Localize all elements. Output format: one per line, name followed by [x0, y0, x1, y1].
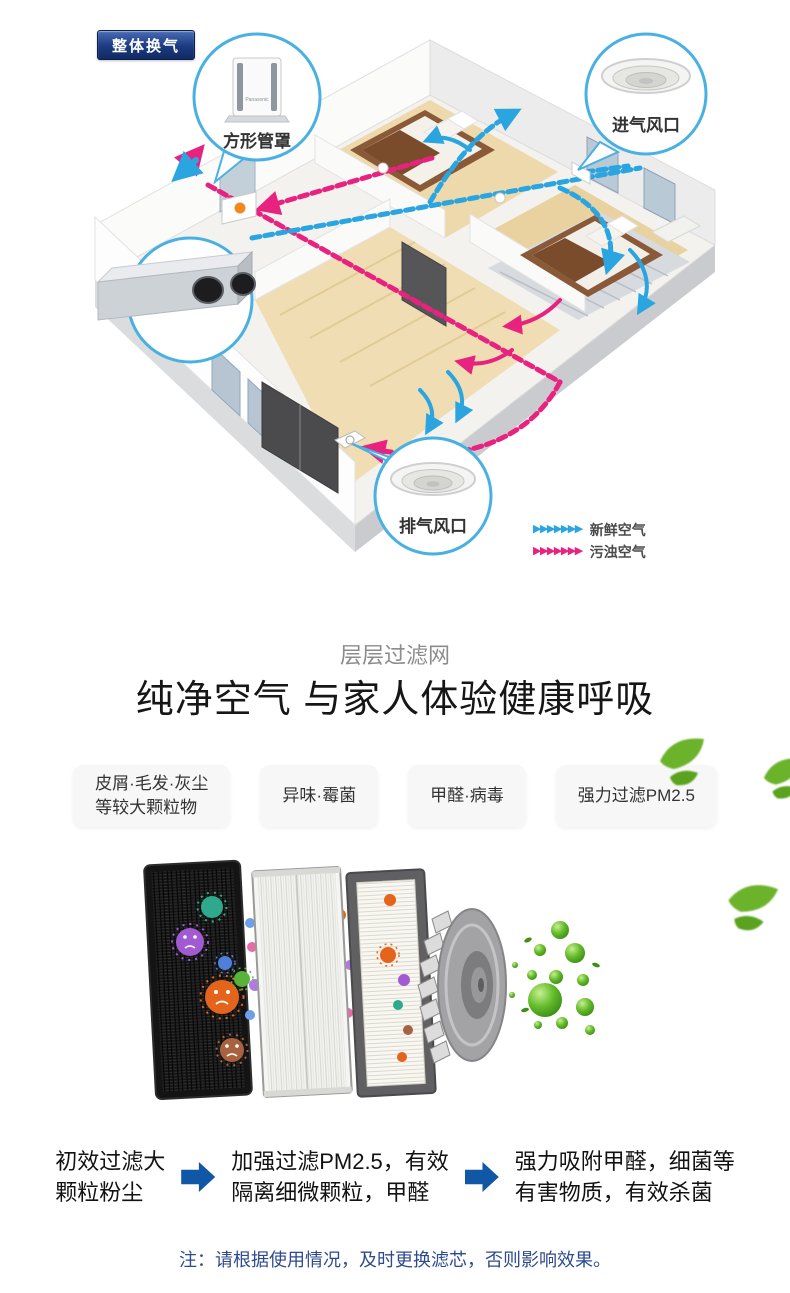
filter-layers-graphic — [0, 845, 790, 1115]
right-arrow-icon — [181, 1162, 215, 1192]
legend-fresh-air: ▶▶▶▶▶▶▶ 新鲜空气 — [533, 521, 646, 538]
mid-filter-panel — [252, 867, 352, 1097]
step-sterilize: 强力吸附甲醛，细菌等 有害物质，有效杀菌 — [515, 1146, 735, 1208]
fresh-air-arrows-icon: ▶▶▶▶▶▶▶ — [533, 524, 582, 535]
clean-air-bubbles — [509, 921, 600, 1035]
intake-vent-label: 进气风口 — [612, 115, 680, 135]
legend-polluted-air: ▶▶▶▶▶▶▶ 污浊空气 — [533, 543, 646, 560]
tag-formaldehyde-virus: 甲醛·病毒 — [408, 765, 526, 827]
leaf-decoration-icon — [652, 733, 722, 793]
intake-vent-callout: 进气风口 — [578, 34, 706, 170]
product-detail-page: Panasonic 方形管罩 进气风口 — [0, 0, 790, 1293]
product-brand-label: Panasonic — [245, 97, 269, 103]
leaf-decoration-icon — [757, 752, 790, 807]
section-badge: 整体换气 — [97, 30, 195, 60]
airflow-legend: ▶▶▶▶▶▶▶ 新鲜空气 ▶▶▶▶▶▶▶ 污浊空气 — [533, 521, 646, 565]
step-pm25-filter: 加强过滤PM2.5，有效 隔离细微颗粒，甲醛 — [231, 1146, 449, 1208]
ceiling-vent-icon — [391, 463, 475, 495]
legend-label: 新鲜空气 — [590, 520, 646, 540]
exhaust-vent-label: 排气风口 — [399, 516, 467, 536]
duct-junction — [495, 193, 505, 203]
polluted-air-arrows-icon: ▶▶▶▶▶▶▶ — [533, 546, 582, 557]
section-subtitle: 层层过滤网 — [0, 638, 790, 670]
filtration-steps: 初效过滤大 颗粒粉尘 加强过滤PM2.5，有效 隔离细微颗粒，甲醛 强力吸附甲醛… — [0, 1146, 790, 1208]
usage-note: 注：请根据使用情况，及时更换滤芯，否则影响效果。 — [0, 1246, 790, 1272]
ceiling-vent-icon — [602, 59, 690, 93]
tag-large-particles: 皮屑·毛发·灰尘 等较大颗粒物 — [73, 765, 230, 827]
tag-odor-mold: 异味·霉菌 — [260, 765, 378, 827]
duct-cover-label: 方形管罩 — [223, 131, 291, 151]
right-arrow-icon — [465, 1162, 499, 1192]
step-pre-filter: 初效过滤大 颗粒粉尘 — [55, 1146, 165, 1208]
ventilation-house-diagram: Panasonic 方形管罩 进气风口 — [0, 0, 790, 575]
legend-label: 污浊空气 — [590, 542, 646, 562]
duct-junction — [378, 163, 388, 173]
fan-wheel — [418, 909, 506, 1063]
section-title: 纯净空气 与家人体验健康呼吸 — [0, 668, 790, 723]
